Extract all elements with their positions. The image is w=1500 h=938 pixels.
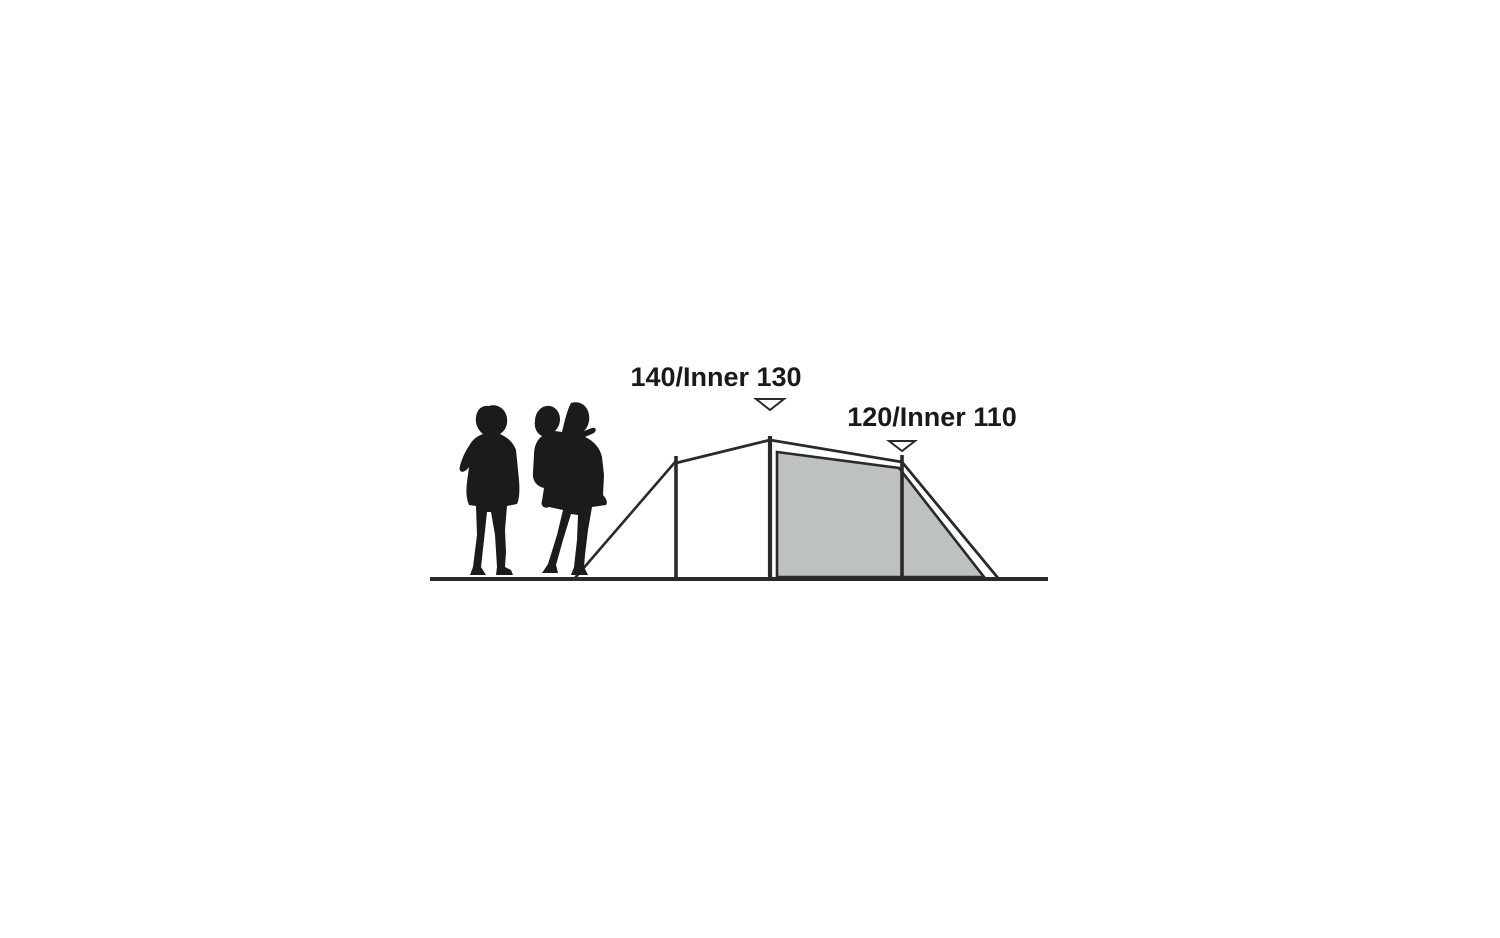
adult-silhouette (460, 405, 520, 575)
peak-height-label: 140/Inner 130 (630, 362, 801, 393)
rear-marker-icon (889, 441, 915, 451)
inner-tent-shape (777, 452, 984, 577)
rear-height-label: 120/Inner 110 (847, 402, 1017, 433)
adult-with-child-silhouette (533, 402, 607, 575)
tent-dimension-diagram: 140/Inner 130 120/Inner 110 (0, 0, 1500, 938)
diagram-artwork (0, 0, 1500, 938)
ridge-line-front (676, 440, 770, 463)
peak-marker-icon (756, 399, 784, 410)
